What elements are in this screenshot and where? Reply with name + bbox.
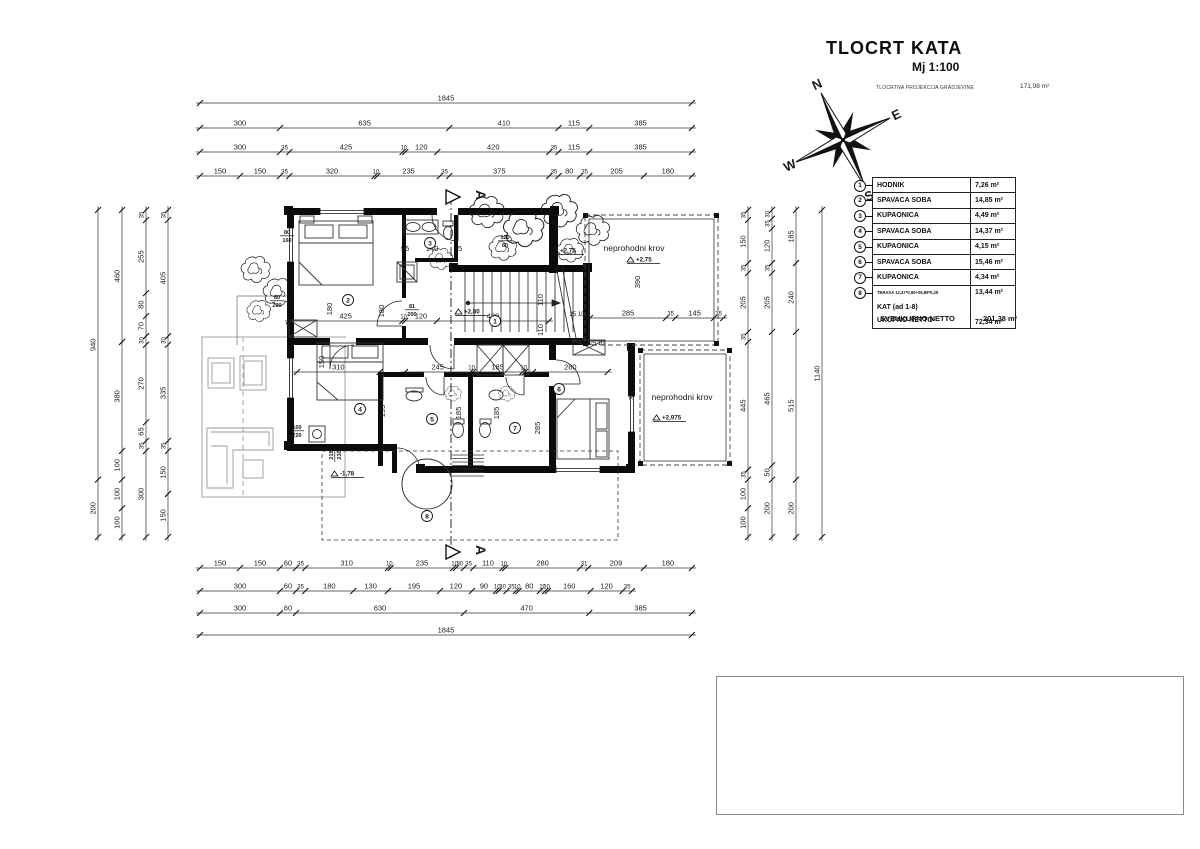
washer: [309, 426, 325, 442]
room-number-value: 8: [425, 513, 429, 520]
dim-label: 35: [162, 211, 168, 218]
dim-label: 35: [441, 170, 448, 176]
dim-label: 245: [431, 363, 444, 372]
room-name: SPAVAĆA SOBA: [873, 259, 970, 266]
room-number-badge: 4: [854, 226, 866, 238]
level-triangle-icon: [627, 257, 634, 262]
section-letter: A: [473, 190, 489, 200]
stair-direction-arrow: [552, 300, 560, 306]
schedule-row: 5KUPAONICA4,15 m²: [873, 240, 1015, 255]
room-schedule-table: 1HODNIK7,26 m²2SPAVAĆA SOBA14,85 m²3KUPA…: [872, 177, 1016, 329]
shower: [397, 262, 417, 282]
dim-label: 425: [339, 312, 352, 321]
dim-label: 70: [137, 322, 146, 330]
dim-label: 100: [739, 516, 748, 529]
sink: [422, 223, 436, 232]
plan-dim-text: 195: [378, 405, 387, 418]
bed-linen: [557, 399, 590, 459]
roof-label-lower: neprohodni krov: [652, 392, 714, 402]
grand-total-label: SVEUKUPNO NETTO: [880, 314, 955, 323]
room-name: KUPAONICA: [873, 243, 970, 250]
level-triangle-icon: [331, 471, 338, 476]
toilet-tank: [443, 221, 453, 226]
dim-label: 150: [159, 466, 168, 479]
dim-label: 35: [715, 312, 722, 318]
floorplan-sheet: A A neprohodni krov neprohodni krov 1845…: [0, 0, 1200, 849]
door-bath5: [426, 377, 444, 395]
grand-total: SVEUKUPNO NETTO 201,38 m²: [880, 314, 1017, 323]
ground-floor-terrace-furniture: [202, 296, 345, 497]
dim-label: 10: [468, 366, 475, 372]
plan-dim-text: 390: [633, 276, 642, 289]
badge-connector: [866, 200, 873, 201]
pillow: [596, 431, 607, 457]
plan-dim-text: 25 10: [569, 312, 585, 318]
dim-label: 50: [763, 468, 772, 476]
dim-label: 195: [408, 582, 421, 591]
plan-dim-text: 110: [536, 294, 545, 306]
dim-label: 380: [113, 390, 122, 403]
room-number-value: 1: [493, 318, 497, 325]
dim-label: 425: [340, 143, 353, 152]
room-name: HODNIK: [873, 182, 970, 189]
dim-label: 100: [113, 516, 122, 529]
nightstand: [358, 216, 372, 223]
room-number-badge: 5: [854, 241, 866, 253]
level-value: +2,80: [464, 309, 480, 316]
room-name: SPAVAĆA SOBA: [873, 197, 970, 204]
dim-label: 235: [416, 559, 429, 568]
dim-label: 630: [374, 604, 387, 613]
dim-label: 90: [480, 582, 488, 591]
dim-label: 310: [340, 559, 353, 568]
bed-linen: [317, 362, 383, 400]
dim-label: 120: [763, 240, 772, 253]
pillow: [305, 225, 333, 238]
dim-label: 35: [742, 333, 748, 340]
sink: [406, 391, 422, 401]
level-value: -1,78: [340, 471, 355, 478]
dim-label: 470: [520, 604, 533, 613]
room-area: 4,34 m²: [970, 270, 1015, 284]
dim-label: 120: [450, 582, 463, 591]
level-mark: +2,75: [627, 257, 660, 264]
badge-connector: [866, 216, 873, 217]
dim-label: 205: [739, 296, 748, 309]
dim-label: 270: [137, 377, 146, 390]
dim-label: 120: [415, 143, 428, 152]
compass-e: E: [889, 106, 903, 123]
plan-dim-text: 395: [627, 388, 636, 401]
plan-dim-text: 285: [533, 422, 542, 435]
dim-label: 150: [739, 235, 748, 248]
roof-lower-edge: [644, 354, 726, 461]
dim-label: 35: [297, 585, 304, 591]
dim-label: 130: [364, 582, 377, 591]
plan-dim-text: 25 10: [589, 341, 605, 347]
dim-label: 240: [787, 291, 796, 304]
opening-size-bottom: 220: [292, 433, 301, 439]
dim-label: 100: [113, 488, 122, 501]
opening-size-top: 215: [329, 450, 335, 459]
plan-dim-text: 150: [317, 356, 326, 369]
schedule-row: 3KUPAONICA4,49 m²: [873, 209, 1015, 224]
dim-label: 375: [493, 167, 506, 176]
dim-label: 65: [137, 427, 146, 435]
dim-label: 35: [162, 442, 168, 449]
roof-lower-dashed: [640, 350, 730, 465]
dim-label: 100: [113, 459, 122, 472]
dim-label: 30: [457, 562, 464, 568]
room-number-value: 7: [513, 425, 517, 432]
dim-label: 150: [159, 509, 168, 522]
dim-label: 205: [610, 167, 623, 176]
dim-label: 35: [742, 471, 748, 478]
plan-dim-text: 185: [492, 407, 501, 420]
dim-label: 35: [551, 146, 558, 152]
dim-label: 300: [234, 119, 247, 128]
dim-label: 60: [284, 582, 292, 591]
dim-label: 35: [766, 264, 772, 271]
dim-label: 35: [624, 585, 631, 591]
dim-label: 35: [281, 146, 288, 152]
dim-label: 115: [568, 119, 580, 128]
dim-label: 150: [254, 167, 267, 176]
dim-label: 35: [667, 312, 674, 318]
room-number: 4: [355, 404, 366, 415]
armchair-seat: [244, 361, 262, 385]
dim-label: 385: [634, 604, 647, 613]
dim-label: 320: [326, 167, 339, 176]
dim-label: 10: [543, 585, 550, 591]
badge-connector: [866, 293, 873, 294]
opening-size-top: 120: [500, 235, 509, 241]
dim-label: 35: [742, 264, 748, 271]
dim-label: 150: [214, 559, 227, 568]
projection-value: 171,98 m²: [1020, 83, 1049, 90]
dim-label: 35: [281, 170, 288, 176]
dim-label: 80: [565, 167, 573, 176]
compass-w: W: [781, 156, 799, 175]
bed: [299, 221, 373, 285]
room-number-badge: 1: [854, 180, 866, 192]
room-number-value: 4: [358, 406, 362, 413]
plan-dim-text: 95: [401, 244, 409, 253]
opening-size-bottom: 220: [272, 303, 281, 309]
armchair-seat: [212, 363, 230, 383]
dim-label: 30: [499, 585, 506, 591]
room-number: 3: [425, 238, 436, 249]
staircase: [465, 266, 576, 338]
dim-label: 35: [465, 562, 472, 568]
dim-label: 200: [787, 502, 796, 515]
dim-label: 110: [482, 559, 494, 568]
room-area: 14,37 m²: [970, 224, 1015, 238]
dim-label: 515: [787, 399, 796, 412]
grand-total-value: 201,38 m²: [983, 314, 1017, 323]
dim-label: 180: [323, 582, 336, 591]
dim-label: 410: [498, 119, 511, 128]
dim-label: 300: [234, 143, 247, 152]
pillow: [352, 346, 378, 358]
room-schedule-rows: 1HODNIK7,26 m²2SPAVAĆA SOBA14,85 m²3KUPA…: [873, 178, 1015, 300]
corner-sofa: [207, 428, 273, 488]
drawing-scale: Mj 1:100: [912, 60, 959, 74]
dim-label: 185: [787, 230, 796, 243]
room-number: 6: [554, 384, 565, 395]
level-value: +2,75: [560, 248, 576, 255]
section-marker-icon: [446, 190, 460, 204]
compass-n: N: [810, 76, 825, 93]
opening-size-top: 80: [284, 230, 290, 236]
room-area: 13,44 m²: [970, 286, 1015, 300]
dim-label: 10: [386, 562, 393, 568]
dim-label: 209: [610, 559, 623, 568]
room-area: 14,85 m²: [970, 193, 1015, 207]
dim-label: 100: [739, 488, 748, 501]
room-number-badge: 7: [854, 272, 866, 284]
plan-dim-text: 180: [377, 305, 386, 318]
dim-label: 200: [89, 502, 98, 515]
room-number: 5: [427, 414, 438, 425]
dim-label: 285: [622, 309, 635, 318]
section-marker-icon: [446, 545, 460, 559]
level-triangle-icon: [455, 309, 462, 314]
dim-label: 1845: [438, 94, 455, 103]
dim-label: 635: [358, 119, 371, 128]
dim-label: 200: [763, 502, 772, 515]
dim-label: 35: [766, 220, 772, 227]
dim-label: 60: [284, 559, 292, 568]
plan-dim-text: 110: [536, 324, 545, 336]
room-area: 15,46 m²: [970, 255, 1015, 269]
plan-dim-text: 180: [325, 303, 334, 316]
dim-label: 280: [564, 363, 577, 372]
room-name: KUPAONICA: [873, 212, 970, 219]
badge-connector: [866, 262, 873, 263]
dim-label: 300: [137, 488, 146, 501]
dim-label: 940: [89, 339, 98, 352]
opening-size-bottom: 230: [337, 450, 343, 459]
opening-size-tag: 80220: [270, 295, 284, 309]
exterior-steps: [452, 455, 484, 476]
badge-connector: [866, 247, 873, 248]
toilet: [480, 423, 491, 438]
dim-label: 10: [401, 146, 408, 152]
dimension-layer: 1845300635410115385300354251012042035115…: [89, 94, 826, 639]
dim-label: 280: [536, 559, 549, 568]
schedule-row: 4SPAVAĆA SOBA14,37 m²: [873, 224, 1015, 239]
roof-label-upper: neprohodni krov: [604, 243, 666, 253]
dim-label: 235: [402, 167, 415, 176]
room-number-value: 2: [346, 297, 350, 304]
planter-edge: [237, 296, 290, 345]
dim-label: 10: [514, 585, 521, 591]
dim-label: 145: [688, 309, 701, 318]
schedule-row: 8TERASA 12,47*0,50+26,89*0,2513,44 m²: [873, 286, 1015, 300]
dim-label: 385: [634, 143, 647, 152]
level-triangle-icon: [653, 415, 660, 420]
coffee-table: [243, 460, 263, 478]
room-number-value: 3: [428, 240, 432, 247]
dim-label: 35: [140, 442, 146, 449]
dim-label: 30: [162, 337, 168, 344]
dim-label: 405: [159, 272, 168, 285]
dim-label: 30: [766, 210, 772, 217]
dim-label: 300: [234, 582, 247, 591]
dim-label: 35: [742, 211, 748, 218]
level-value: +2,75: [636, 257, 652, 264]
bed-linen: [299, 243, 373, 285]
room-number: 1: [490, 316, 501, 327]
dim-label: 335: [159, 387, 168, 400]
dim-label: 255: [137, 250, 146, 263]
room-area: 4,49 m²: [970, 209, 1015, 223]
sink: [406, 223, 420, 232]
dim-label: 10: [520, 366, 527, 372]
dim-label: 185: [491, 363, 504, 372]
bed: [317, 343, 383, 400]
opening-size-bottom: 60: [502, 243, 508, 249]
empty-title-box: [716, 676, 1184, 815]
dim-label: 35: [581, 170, 588, 176]
room-number: 7: [510, 423, 521, 434]
nightstand: [300, 216, 314, 223]
dim-label: 160: [563, 582, 576, 591]
room-number-value: 5: [430, 416, 434, 423]
section-letter: A: [473, 545, 489, 555]
dim-label: 310: [332, 363, 345, 372]
level-value: +2,975: [662, 415, 682, 422]
dim-label: 35: [140, 211, 146, 218]
schedule-row: 6SPAVAĆA SOBA15,46 m²: [873, 255, 1015, 270]
badge-connector: [866, 277, 873, 278]
dim-label: 1140: [813, 365, 822, 381]
opening-size-bottom: 200: [407, 312, 416, 318]
room-number-value: 6: [557, 386, 561, 393]
badge-connector: [866, 185, 873, 186]
level-mark: +2,975: [653, 415, 686, 422]
dim-label: 80: [137, 300, 146, 308]
room-name: TERASA 12,47*0,50+26,89*0,25: [873, 290, 970, 295]
dim-label: 10: [373, 170, 380, 176]
dim-label: 35: [297, 562, 304, 568]
dim-label: 150: [254, 559, 267, 568]
dim-label: 150: [214, 167, 227, 176]
plan-dim-text: 25: [454, 244, 462, 253]
schedule-row: 2SPAVAĆA SOBA14,85 m²: [873, 193, 1015, 208]
plan-dim-text: 185: [454, 407, 463, 420]
pillow: [339, 225, 367, 238]
dim-label: 30: [140, 337, 146, 344]
room-name: SPAVAĆA SOBA: [873, 228, 970, 235]
pillow: [596, 403, 607, 429]
dim-label: 10: [501, 562, 508, 568]
level-mark: -1,78: [331, 471, 364, 478]
dim-label: 80: [525, 582, 533, 591]
corner-sofa-inner: [211, 432, 269, 484]
room-name: KUPAONICA: [873, 274, 970, 281]
schedule-row: 7KUPAONICA4,34 m²: [873, 270, 1015, 285]
room-number-badge: 2: [854, 195, 866, 207]
sink: [489, 390, 503, 400]
roof-upper-dashed: [585, 215, 718, 345]
dim-label: 1845: [438, 626, 455, 635]
toilet-tank: [480, 419, 491, 424]
dim-label: 385: [634, 119, 647, 128]
dim-label: 31: [581, 562, 588, 568]
opening-size-top: 80: [274, 295, 280, 301]
toilet: [453, 423, 464, 438]
drawing-title: TLOCRT KATA: [826, 38, 962, 59]
room-area: 7,26 m²: [970, 178, 1015, 192]
dim-label: 180: [662, 559, 675, 568]
dim-label: 115: [568, 143, 580, 152]
room-number: 8: [422, 511, 433, 522]
dim-label: 205: [763, 296, 772, 309]
dim-label: 120: [600, 582, 613, 591]
kat-label: KAT (ad 1-8): [877, 301, 933, 314]
opening-size-top: 81: [409, 304, 415, 310]
dim-label: 35: [551, 170, 558, 176]
schedule-row: 1HODNIK7,26 m²: [873, 178, 1015, 193]
dim-label: 460: [113, 270, 122, 283]
dim-label: 420: [487, 143, 500, 152]
opening-size-bottom: 160: [282, 238, 291, 244]
dim-label: 445: [739, 399, 748, 412]
room-area: 4,15 m²: [970, 240, 1015, 254]
dim-label: 180: [662, 167, 675, 176]
badge-connector: [866, 231, 873, 232]
dim-label: 60: [284, 604, 292, 613]
opening-size-top: 100: [292, 425, 301, 431]
dim-label: 465: [763, 392, 772, 405]
room-number: 2: [343, 295, 354, 306]
dim-label: 300: [234, 604, 247, 613]
